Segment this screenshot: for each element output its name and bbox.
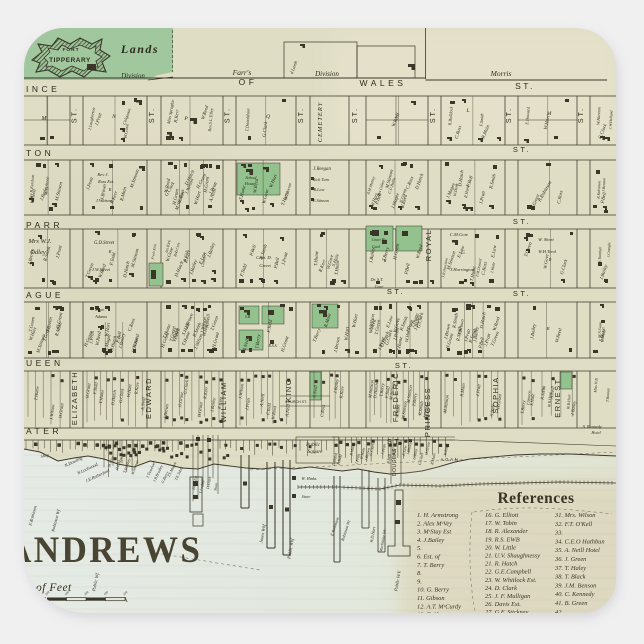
svg-text:P: P	[183, 116, 188, 122]
svg-text:W.Hannon: W.Hannon	[596, 107, 602, 125]
svg-text:ST.: ST.	[298, 107, 305, 123]
svg-text:32. F.T. O'Kell: 32. F.T. O'Kell	[554, 521, 592, 528]
svg-text:J.Reegan: J.Reegan	[313, 167, 331, 172]
svg-text:33.: 33.	[554, 530, 563, 537]
svg-text:CEMETERY: CEMETERY	[317, 101, 324, 142]
svg-text:OF: OF	[239, 77, 258, 87]
svg-text:36. J. Green: 36. J. Green	[554, 556, 586, 563]
svg-text:T.Harrington: T.Harrington	[450, 267, 475, 272]
svg-text:R.Law: R.Law	[313, 187, 325, 192]
svg-text:Division: Division	[314, 70, 339, 78]
svg-text:ST.: ST.	[72, 107, 79, 123]
svg-text:Capt.: Capt.	[95, 307, 105, 312]
svg-text:C.M.Gore: C.M.Gore	[450, 232, 468, 237]
svg-text:AGUE: AGUE	[26, 290, 64, 300]
svg-text:ST.: ST.	[513, 145, 531, 154]
svg-text:6. Est. of: 6. Est. of	[417, 554, 441, 561]
svg-text:24. D. Clark: 24. D. Clark	[485, 585, 517, 592]
svg-text:7. T. Berry: 7. T. Berry	[417, 562, 444, 569]
svg-text:Rich Turn: Rich Turn	[312, 177, 330, 182]
svg-text:J.Crangle: J.Crangle	[607, 242, 612, 258]
svg-text:R: R	[546, 326, 550, 331]
svg-text:ST.: ST.	[352, 107, 359, 123]
svg-text:16. G. Elliott: 16. G. Elliott	[485, 512, 519, 519]
svg-text:Store: Store	[302, 494, 311, 499]
svg-text:W.H.Teed: W.H.Teed	[538, 249, 556, 254]
svg-text:TIPPERARY: TIPPERARY	[49, 57, 91, 64]
svg-text:ST.: ST.	[513, 289, 531, 298]
svg-text:9.: 9.	[417, 578, 422, 585]
svg-text:Adams: Adams	[94, 314, 107, 319]
svg-text:41. B. Green: 41. B. Green	[555, 600, 587, 607]
svg-text:11. Gibson: 11. Gibson	[417, 595, 445, 602]
svg-text:18. R. Alexander: 18. R. Alexander	[485, 528, 528, 535]
svg-text:W. Hinks: W. Hinks	[302, 476, 317, 481]
svg-text:38. T. Black: 38. T. Black	[554, 574, 586, 581]
svg-text:R: R	[383, 258, 387, 263]
svg-text:PRINCESS: PRINCESS	[423, 387, 432, 437]
svg-text:J.W.Street: J.W.Street	[92, 267, 111, 272]
svg-text:37. T. Haley: 37. T. Haley	[554, 565, 586, 572]
svg-text:ST.: ST.	[149, 107, 156, 123]
svg-text:N: N	[111, 114, 116, 120]
svg-text:Rev J.: Rev J.	[96, 172, 108, 177]
svg-text:Dr. S.T.: Dr. S.T.	[369, 277, 383, 282]
svg-text:WALES: WALES	[360, 78, 407, 88]
svg-text:Green: Green	[259, 263, 271, 268]
svg-text:M: M	[41, 116, 48, 122]
svg-text:8.: 8.	[417, 570, 422, 577]
svg-text:12. A.T. MᶜCurdy: 12. A.T. MᶜCurdy	[417, 603, 461, 610]
svg-text:ATER: ATER	[26, 426, 62, 436]
svg-text:EDWARD: EDWARD	[144, 377, 153, 419]
svg-text:ST.: ST.	[513, 217, 531, 226]
svg-text:ROYAL: ROYAL	[424, 229, 433, 261]
svg-text:Mrs W.J.: Mrs W.J.	[27, 238, 51, 245]
svg-text:G.D.Street: G.D.Street	[94, 241, 115, 246]
svg-text:R: R	[548, 257, 552, 262]
svg-text:34. C.E.O Hathbun: 34. C.E.O Hathbun	[554, 538, 605, 545]
svg-text:Public: Public	[305, 442, 321, 448]
svg-text:Division: Division	[120, 72, 145, 80]
svg-text:22. G.E.Campbell: 22. G.E.Campbell	[485, 569, 531, 576]
svg-text:E.Stinson: E.Stinson	[312, 198, 329, 203]
svg-text:25. J. F. Mulligan: 25. J. F. Mulligan	[485, 593, 530, 600]
svg-text:5.: 5.	[417, 545, 422, 552]
svg-text:W.Mowatt: W.Mowatt	[601, 326, 606, 342]
svg-text:23. W. Whitlock Est.: 23. W. Whitlock Est.	[485, 577, 537, 584]
svg-text:26. Davis Est.: 26. Davis Est.	[485, 601, 521, 608]
svg-text:References: References	[497, 490, 574, 507]
svg-text:FREDERIC: FREDERIC	[391, 372, 400, 422]
svg-text:Capt. D.: Capt. D.	[256, 255, 272, 260]
svg-text:35. A. Neill Hotel: 35. A. Neill Hotel	[554, 547, 600, 554]
svg-text:L: L	[465, 108, 469, 114]
svg-text:31. Mrs. Wilson: 31. Mrs. Wilson	[554, 512, 595, 519]
svg-text:Court Ho: Court Ho	[372, 238, 387, 242]
svg-text:PARR: PARR	[26, 220, 63, 230]
svg-text:J.Benson: J.Benson	[602, 178, 607, 192]
svg-text:R.S.S.: R.S.S.	[268, 344, 278, 348]
svg-text:W. Short: W. Short	[538, 237, 554, 242]
svg-text:21. R. Hatch: 21. R. Hatch	[485, 561, 517, 568]
svg-text:DOUGLAS: DOUGLAS	[392, 448, 398, 476]
svg-text:T.Rooney: T.Rooney	[606, 387, 611, 402]
svg-text:1. H. Armstrong: 1. H. Armstrong	[417, 512, 459, 519]
svg-text:ST.: ST.	[225, 107, 232, 123]
svg-text:Odley: Odley	[30, 249, 46, 256]
svg-text:Square: Square	[307, 449, 323, 455]
svg-text:TON: TON	[26, 148, 54, 158]
svg-text:4. J.Bailey: 4. J.Bailey	[417, 537, 444, 544]
svg-text:UEEN: UEEN	[26, 358, 64, 368]
svg-text:21. U.V. Shaughnessy: 21. U.V. Shaughnessy	[485, 553, 540, 560]
svg-text:AGAN: AGAN	[441, 457, 460, 462]
svg-text:ST.: ST.	[387, 287, 405, 296]
svg-text:19. R.S. EWB: 19. R.S. EWB	[485, 536, 520, 543]
svg-text:ST.: ST.	[506, 107, 513, 123]
svg-text:40. C. Kennedy: 40. C. Kennedy	[555, 591, 595, 598]
svg-text:Ross Est.: Ross Est.	[97, 179, 114, 184]
svg-text:Q: Q	[266, 114, 270, 120]
svg-text:M: M	[546, 111, 552, 117]
svg-text:ST.: ST.	[395, 361, 413, 370]
svg-text:R: R	[108, 249, 112, 254]
svg-text:ELIZABETH: ELIZABETH	[70, 371, 79, 425]
svg-text:ERNEST: ERNEST	[553, 378, 562, 417]
svg-text:20. W. Little: 20. W. Little	[485, 544, 516, 551]
svg-text:KING: KING	[284, 378, 293, 402]
svg-text:Hotel: Hotel	[590, 430, 601, 435]
svg-text:G: G	[461, 251, 465, 256]
svg-text:17. W. Tobin: 17. W. Tobin	[485, 520, 517, 527]
svg-text:WILLIAM: WILLIAM	[219, 381, 228, 422]
svg-text:3. MᶜStay Est: 3. MᶜStay Est	[416, 529, 451, 536]
svg-text:ST.: ST.	[430, 107, 437, 123]
svg-text:Morris: Morris	[490, 69, 512, 78]
svg-text:SOPHIA: SOPHIA	[491, 376, 500, 413]
svg-text:A. Kennedy: A. Kennedy	[581, 424, 601, 429]
svg-text:Lands: Lands	[120, 42, 159, 56]
svg-text:FORT: FORT	[62, 47, 79, 53]
svg-text:ST.: ST.	[515, 81, 535, 91]
svg-text:2. Alex MᶜVey: 2. Alex MᶜVey	[417, 520, 452, 527]
svg-text:J.Watson: J.Watson	[96, 198, 113, 203]
svg-text:S.B.: S.B.	[245, 315, 251, 319]
svg-text:39. J.M. Benson: 39. J.M. Benson	[554, 582, 596, 589]
svg-text:R: R	[108, 187, 112, 192]
svg-text:Farr's: Farr's	[232, 68, 252, 77]
svg-text:Gore: Gore	[375, 284, 384, 289]
svg-text:ANDREWS: ANDREWS	[6, 529, 202, 570]
svg-text:10. G. Berry: 10. G. Berry	[417, 587, 449, 594]
svg-text:INCE: INCE	[26, 84, 60, 94]
svg-text:ST.: ST.	[578, 107, 585, 123]
